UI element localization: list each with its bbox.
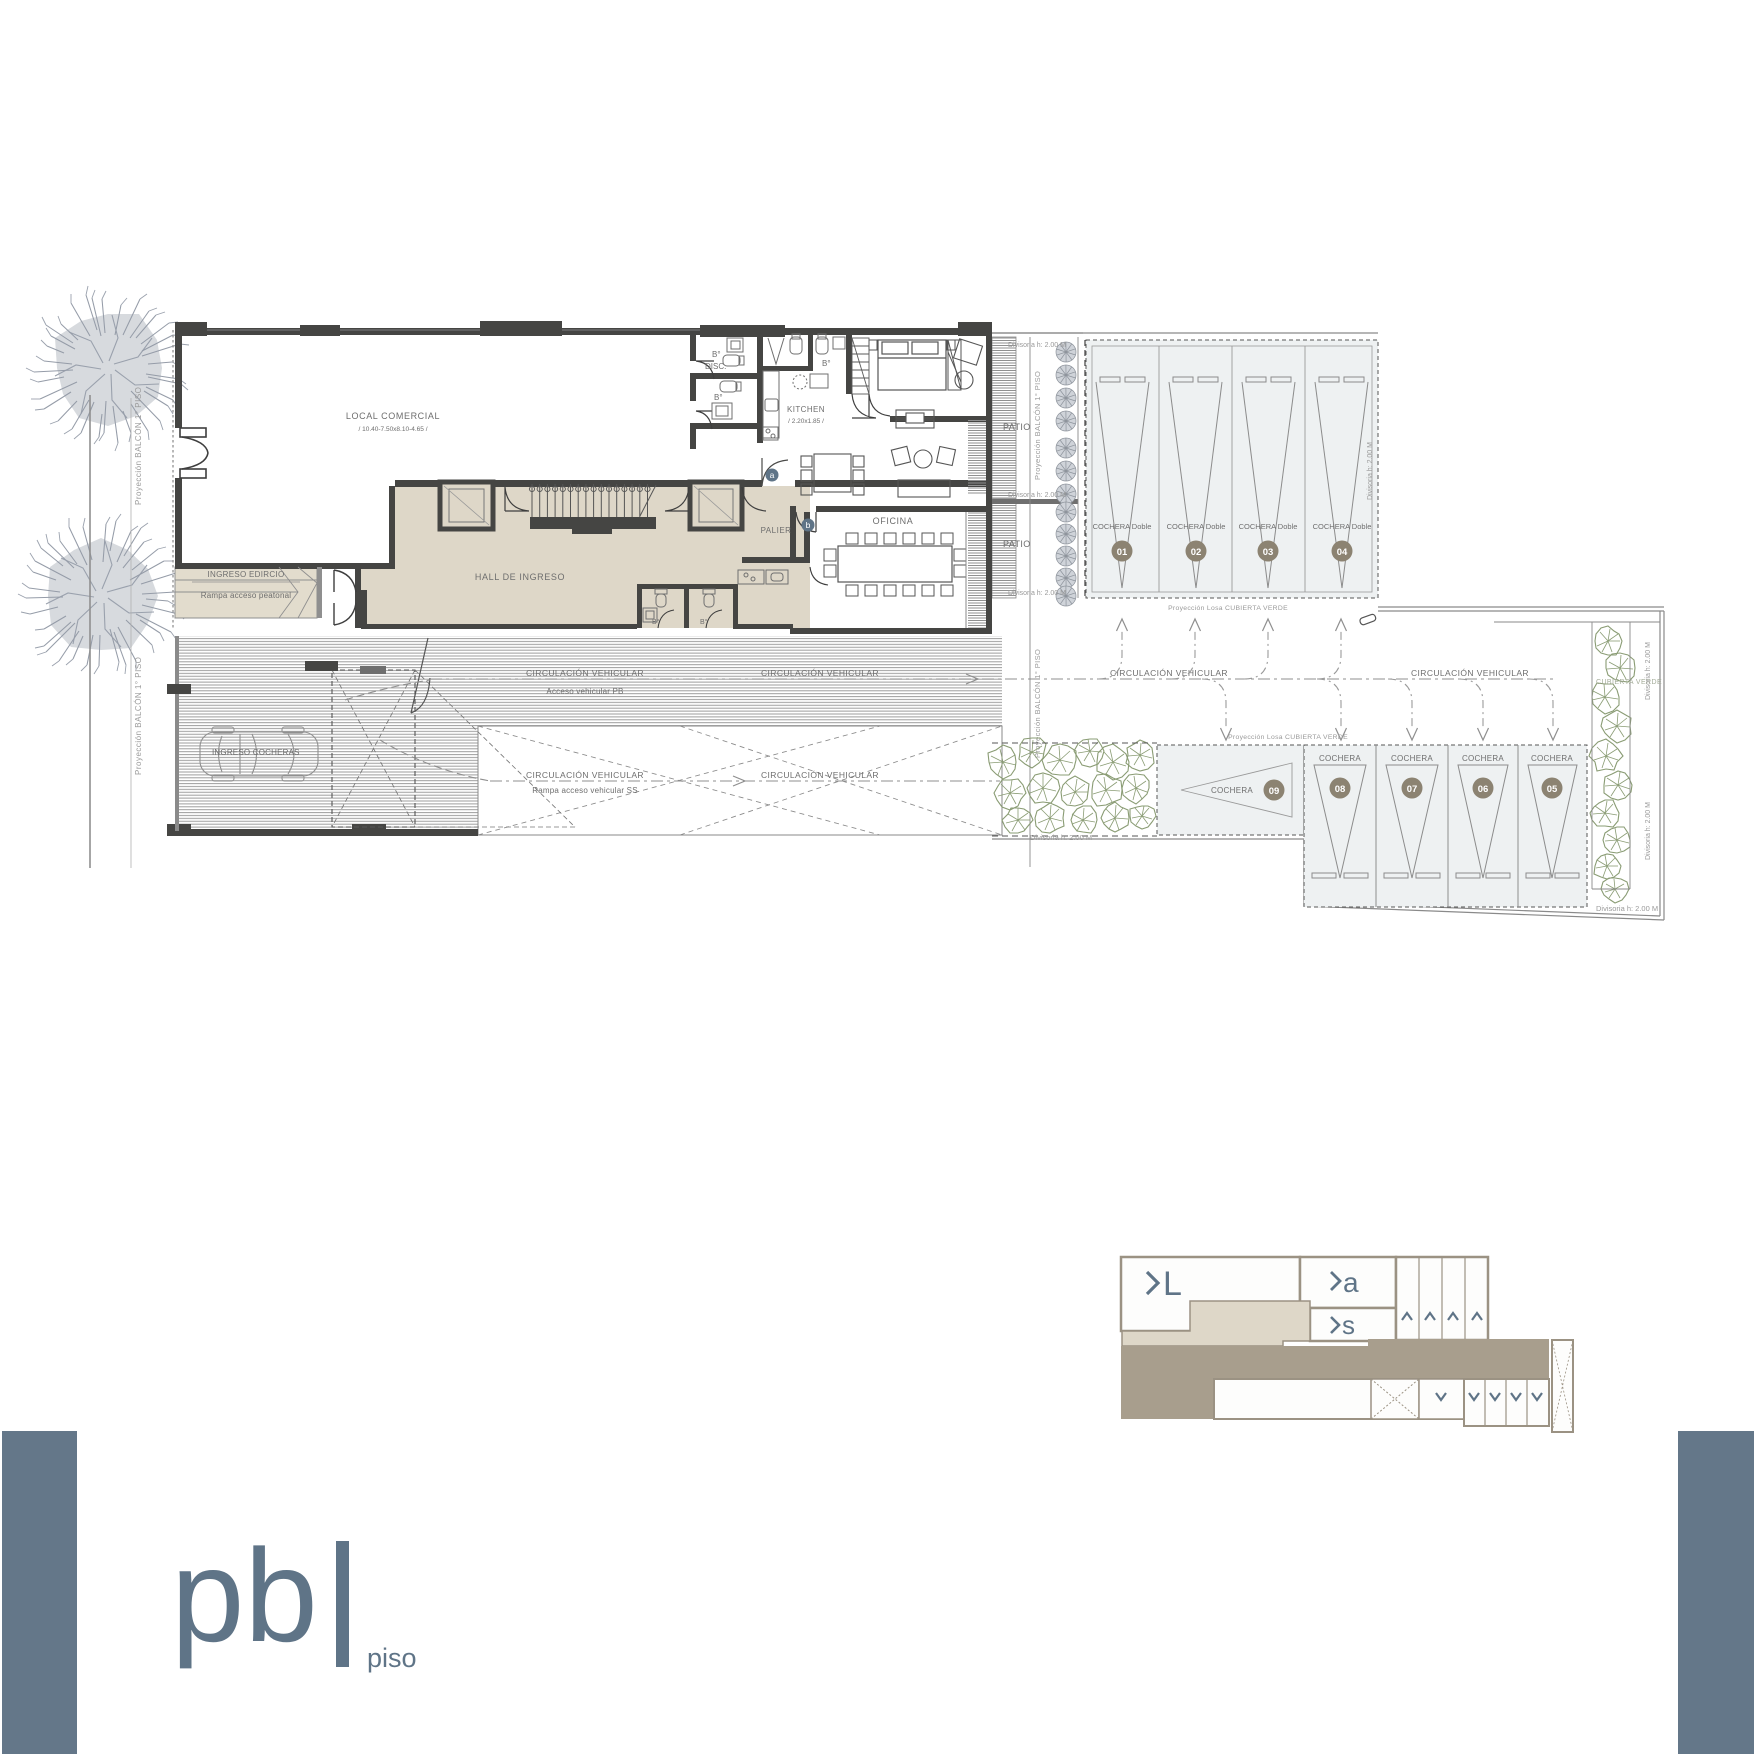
svg-text:Divisoria h: 2.00 M: Divisoria h: 2.00 M bbox=[1030, 833, 1092, 842]
svg-text:s: s bbox=[1342, 1310, 1355, 1340]
svg-text:OFICINA: OFICINA bbox=[873, 516, 914, 526]
svg-text:HALL DE INGRESO: HALL DE INGRESO bbox=[475, 572, 565, 582]
svg-text:CIRCULACIÓN VEHICULAR: CIRCULACIÓN VEHICULAR bbox=[761, 770, 879, 780]
svg-text:PATIO: PATIO bbox=[1003, 539, 1031, 549]
svg-text:Proyección BALCÓN 1° PISO: Proyección BALCÓN 1° PISO bbox=[1033, 371, 1042, 480]
svg-text:01: 01 bbox=[1117, 547, 1128, 558]
svg-text:COCHERA: COCHERA bbox=[1531, 754, 1573, 763]
svg-text:piso: piso bbox=[367, 1643, 417, 1673]
svg-text:Proyección BALCÓN 1° PISO: Proyección BALCÓN 1° PISO bbox=[134, 387, 143, 505]
svg-text:Divisoria h: 2.00 M: Divisoria h: 2.00 M bbox=[1367, 442, 1374, 500]
svg-text:COCHERA Doble: COCHERA Doble bbox=[1093, 522, 1152, 531]
svg-text:LOCAL COMERCIAL: LOCAL COMERCIAL bbox=[346, 411, 440, 421]
svg-text:INGRESO EDIRCIO: INGRESO EDIRCIO bbox=[208, 570, 285, 579]
svg-text:CIRCULACIÓN VEHICULAR: CIRCULACIÓN VEHICULAR bbox=[526, 770, 644, 780]
svg-text:Rampa acceso peatonal: Rampa acceso peatonal bbox=[201, 591, 291, 600]
svg-text:a: a bbox=[1343, 1267, 1359, 1298]
svg-text:B°: B° bbox=[652, 618, 660, 626]
svg-text:04: 04 bbox=[1337, 547, 1348, 558]
svg-text:07: 07 bbox=[1407, 784, 1418, 795]
svg-text:COCHERA: COCHERA bbox=[1391, 754, 1433, 763]
svg-text:DISC.: DISC. bbox=[705, 362, 726, 371]
svg-text:COCHERA: COCHERA bbox=[1319, 754, 1361, 763]
svg-text:/ 10.40-7.50x8.10-4.65 /: / 10.40-7.50x8.10-4.65 / bbox=[358, 426, 427, 433]
svg-text:CIRCULACIÓN VEHICULAR: CIRCULACIÓN VEHICULAR bbox=[1110, 668, 1228, 678]
svg-text:B°: B° bbox=[714, 393, 723, 402]
svg-text:CUBIERTA VERDE: CUBIERTA VERDE bbox=[1596, 679, 1662, 686]
svg-text:Rampa acceso vehicular SS: Rampa acceso vehicular SS bbox=[532, 786, 638, 795]
svg-text:L: L bbox=[1163, 1265, 1182, 1303]
svg-text:b: b bbox=[806, 520, 811, 530]
svg-text:Divisoria h: 2.00 M: Divisoria h: 2.00 M bbox=[1008, 492, 1066, 499]
svg-text:B°: B° bbox=[712, 350, 721, 359]
svg-text:Divisoria h: 2.00 M: Divisoria h: 2.00 M bbox=[1596, 904, 1658, 913]
svg-text:02: 02 bbox=[1191, 547, 1202, 558]
svg-text:06: 06 bbox=[1478, 784, 1489, 795]
svg-text:COCHERA: COCHERA bbox=[1211, 786, 1253, 795]
svg-text:COCHERA: COCHERA bbox=[1462, 754, 1504, 763]
svg-text:INGRESO COCHERAS: INGRESO COCHERAS bbox=[212, 748, 300, 757]
svg-text:Acceso vehicular PB: Acceso vehicular PB bbox=[546, 687, 623, 696]
svg-text:CIRCULACIÓN VEHICULAR: CIRCULACIÓN VEHICULAR bbox=[526, 668, 644, 678]
svg-text:Proyección Losa CUBIERTA VERDE: Proyección Losa CUBIERTA VERDE bbox=[1228, 734, 1348, 741]
svg-text:Divisoria h: 2.00 M: Divisoria h: 2.00 M bbox=[1645, 802, 1652, 860]
svg-text:CIRCULACIÓN VEHICULAR: CIRCULACIÓN VEHICULAR bbox=[761, 668, 879, 678]
svg-text:Divisoria h: 2.00 M: Divisoria h: 2.00 M bbox=[1645, 642, 1652, 700]
svg-text:a: a bbox=[770, 470, 775, 480]
svg-text:B°: B° bbox=[822, 359, 831, 368]
svg-text:09: 09 bbox=[1269, 786, 1280, 797]
svg-text:COCHERA Doble: COCHERA Doble bbox=[1167, 522, 1226, 531]
svg-text:08: 08 bbox=[1335, 784, 1346, 795]
svg-text:PALIER: PALIER bbox=[761, 526, 792, 535]
svg-text:PATIO: PATIO bbox=[1003, 422, 1031, 432]
svg-text:KITCHEN: KITCHEN bbox=[787, 405, 825, 414]
svg-text:/ 2.20x1.85 /: / 2.20x1.85 / bbox=[788, 418, 824, 425]
svg-text:COCHERA Doble: COCHERA Doble bbox=[1239, 522, 1298, 531]
svg-text:03: 03 bbox=[1263, 547, 1274, 558]
svg-text:pb: pb bbox=[171, 1522, 318, 1669]
svg-text:Proyección BALCÓN 1° PISO: Proyección BALCÓN 1° PISO bbox=[1033, 649, 1042, 758]
svg-text:Proyección Losa CUBIERTA VERDE: Proyección Losa CUBIERTA VERDE bbox=[1168, 605, 1288, 612]
svg-text:COCHERA Doble: COCHERA Doble bbox=[1313, 522, 1372, 531]
svg-text:CIRCULACIÓN VEHICULAR: CIRCULACIÓN VEHICULAR bbox=[1411, 668, 1529, 678]
svg-text:Divisoria h: 2.00 M: Divisoria h: 2.00 M bbox=[1008, 342, 1066, 349]
svg-text:Divisoria h: 2.00 M: Divisoria h: 2.00 M bbox=[1008, 590, 1066, 597]
svg-text:05: 05 bbox=[1547, 784, 1558, 795]
svg-text:Proyección BALCÓN 1° PISO: Proyección BALCÓN 1° PISO bbox=[134, 657, 143, 775]
svg-text:B°: B° bbox=[700, 618, 708, 626]
